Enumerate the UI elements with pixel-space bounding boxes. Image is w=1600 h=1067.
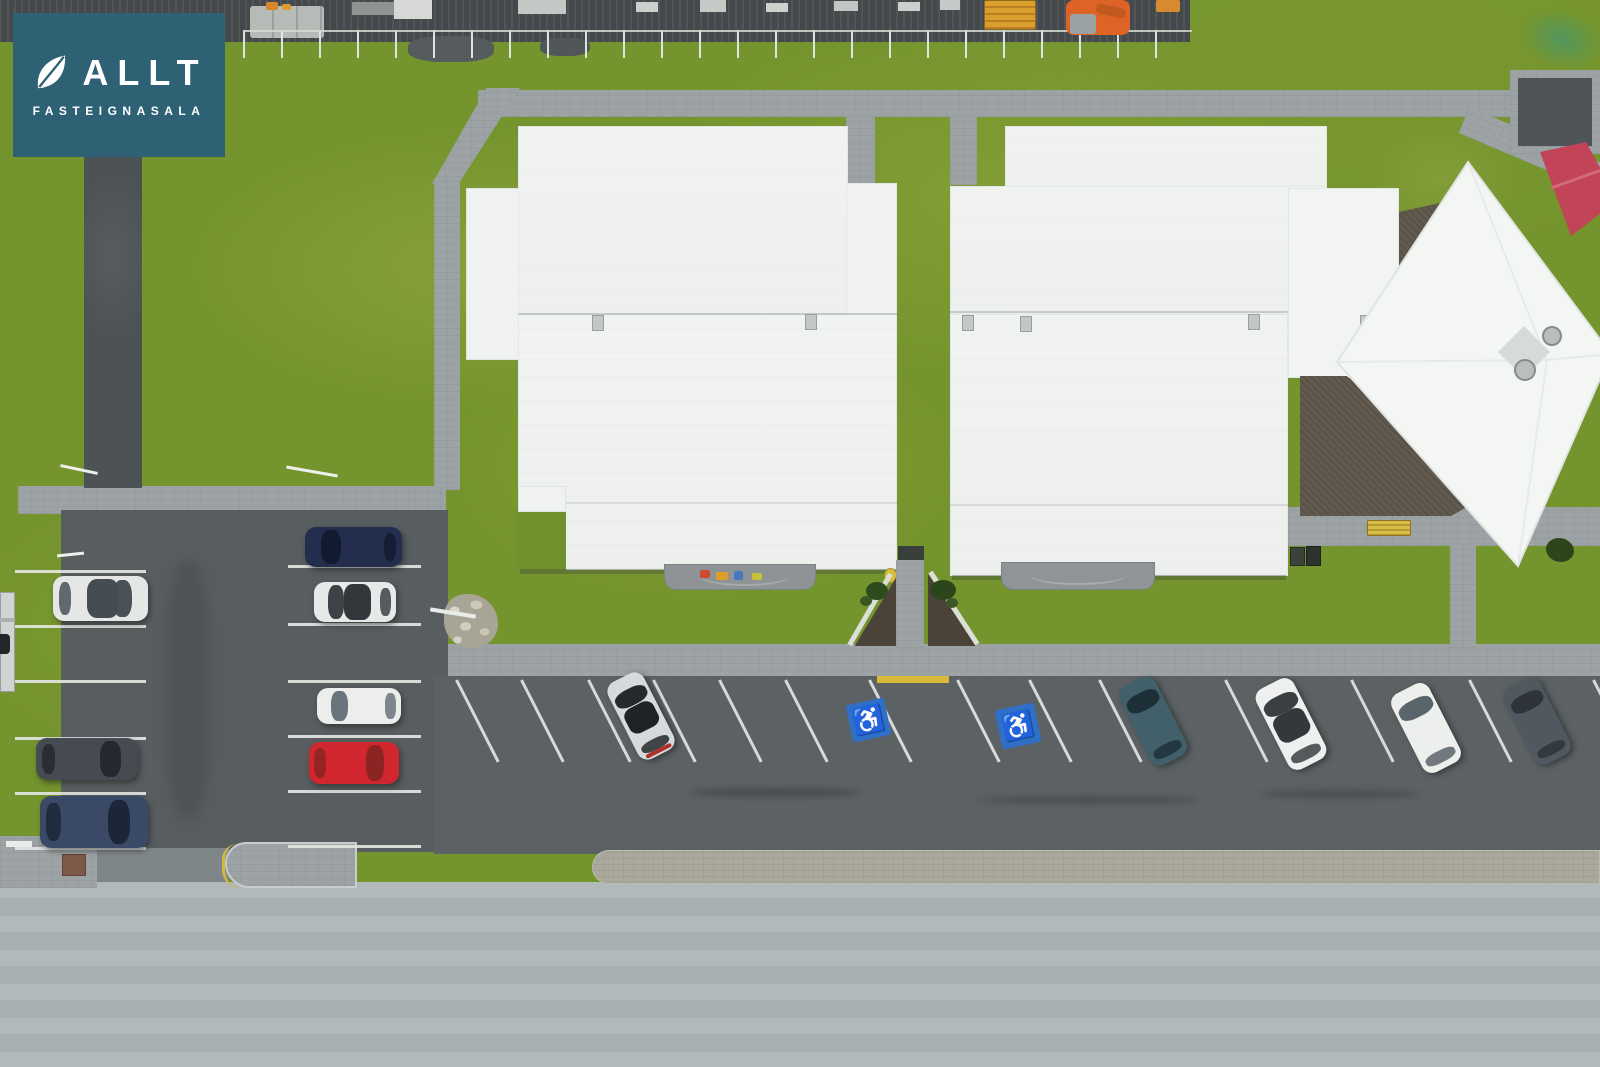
car-white-black-roof-suv [314, 582, 396, 622]
windshield [328, 585, 344, 619]
patio-toy [716, 572, 728, 580]
roof-hatch [1020, 316, 1032, 332]
building1-porch [518, 486, 566, 512]
machine-cab [1070, 14, 1096, 34]
utility-box [62, 854, 86, 876]
construction-fence [243, 30, 1192, 58]
stall-line [288, 735, 421, 738]
stall-line [15, 792, 146, 795]
roof-seam [950, 311, 1288, 313]
stall-line [15, 680, 146, 683]
concrete-block [636, 2, 658, 12]
rear-window [314, 748, 326, 778]
wheelchair-icon: ♿ [994, 702, 1041, 749]
windshield [321, 530, 340, 564]
roof-seam [518, 313, 897, 315]
concrete-block [898, 2, 920, 11]
car-white-roofbox [53, 576, 148, 621]
wheelchair-icon: ♿ [845, 697, 891, 742]
walkway-west-vertical [434, 178, 460, 490]
stall-line [288, 790, 421, 793]
concrete-block [518, 0, 566, 14]
asphalt-footpath-west [84, 156, 142, 488]
car-navy-suv [305, 527, 402, 567]
concrete-block [700, 0, 726, 12]
waste-bin [1290, 547, 1305, 566]
orange-marker [282, 4, 291, 10]
car-dark-gray [36, 738, 138, 780]
car-dark-blue-sedan [40, 796, 148, 848]
building1-west-wing-roof [466, 188, 520, 360]
walkway-center [896, 560, 924, 648]
walkway-top-band [478, 90, 1522, 117]
yellow-curb [877, 676, 949, 683]
rear-window [384, 533, 397, 562]
brand-watermark: ALLT FASTEIGNASALA [13, 13, 225, 157]
street-road [0, 882, 1600, 1067]
concrete-block [352, 2, 396, 15]
car-roof [344, 584, 372, 619]
trailer-stripe [0, 618, 15, 622]
windshield [366, 745, 384, 780]
shrub [946, 598, 958, 608]
windshield [100, 741, 120, 776]
concrete-block [766, 3, 788, 12]
windshield [331, 691, 348, 721]
stall-line [288, 623, 421, 626]
concrete-block [834, 1, 858, 11]
building2-lower-roof [950, 314, 1288, 576]
brand-leaf-icon [30, 52, 72, 94]
median-paver-strip [592, 850, 1600, 884]
building1-main-roof [518, 314, 897, 570]
rear-window [380, 588, 391, 617]
aisle-tire-marks [165, 560, 211, 820]
handicap-stall-marking: ♿ [994, 702, 1041, 749]
roof-hatch [592, 315, 604, 331]
orange-marker [266, 2, 278, 10]
car-red [309, 742, 399, 784]
rear-window [385, 693, 396, 719]
brand-name: ALLT [82, 52, 207, 94]
stall-line [15, 570, 146, 573]
patio-stair-arc [700, 566, 790, 586]
waste-bin [1306, 546, 1321, 566]
stall-line [288, 845, 421, 848]
roof-hatch [962, 315, 974, 331]
building1-upper-roof [518, 126, 848, 316]
roof-hatch [1248, 314, 1260, 330]
patio-toy [700, 570, 710, 578]
building1-lawn-inset [516, 508, 566, 572]
parked-car-edge [0, 634, 10, 654]
windshield [1508, 687, 1546, 718]
building2-main-roof [950, 186, 1327, 316]
concrete-block [940, 0, 960, 10]
tire-smudge [690, 788, 860, 797]
driveway-pad [1518, 78, 1592, 146]
walkway-bottom-band [434, 644, 1600, 678]
shrub [860, 596, 872, 606]
rear-window [46, 803, 60, 840]
concrete-slab [394, 0, 432, 19]
stall-line [288, 680, 421, 683]
roof-hatch [805, 314, 817, 330]
windshield [1396, 693, 1435, 725]
entry-walk-stub [846, 117, 875, 185]
patio-toy [752, 573, 762, 580]
curb-peninsula [225, 842, 357, 888]
pyramid-roof-building [1328, 148, 1600, 576]
patio-toy [734, 571, 743, 580]
rear-window [42, 744, 55, 774]
car-roof [87, 579, 119, 619]
tire-smudge [1260, 790, 1420, 798]
pallet-stack [984, 0, 1036, 30]
brand-subtitle: FASTEIGNASALA [33, 104, 206, 118]
aerial-photo: ALLT FASTEIGNASALA ♿♿ [0, 0, 1600, 1067]
building2-upper-roof [1005, 126, 1327, 188]
stall-line [15, 625, 146, 628]
handicap-stall-marking: ♿ [845, 697, 891, 742]
patio-stair-arc [1030, 565, 1126, 585]
building1-northeast-roof [846, 183, 897, 316]
windshield [1124, 686, 1162, 717]
shrub [930, 580, 956, 600]
tire-smudge [980, 796, 1200, 804]
car-white-hatchback [317, 688, 401, 724]
windshield [108, 800, 130, 844]
orange-equipment [1156, 0, 1180, 12]
rear-window [59, 582, 71, 614]
roof-seam [950, 504, 1288, 506]
roof-seam [518, 502, 897, 504]
entry-walk-stub [950, 117, 977, 185]
